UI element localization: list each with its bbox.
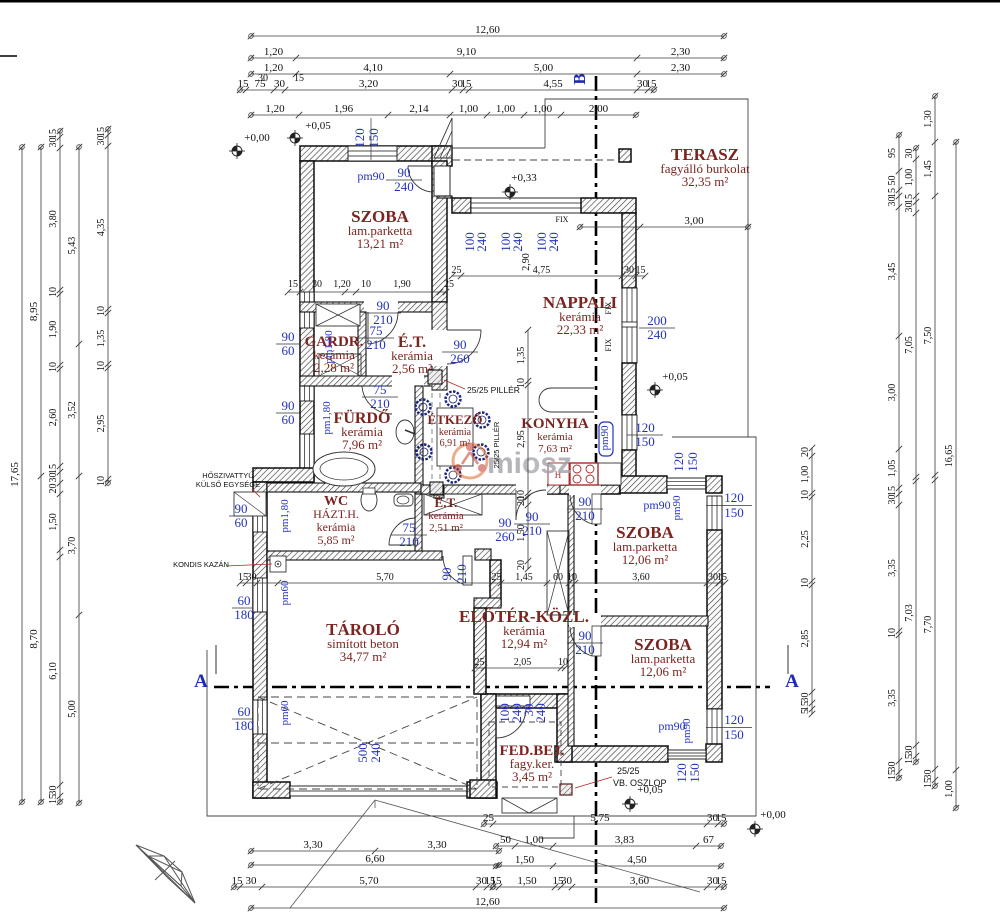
svg-text:240: 240 [546,232,561,252]
svg-text:5,43: 5,43 [67,237,78,255]
svg-text:20: 20 [516,496,527,506]
svg-text:4,35: 4,35 [96,219,107,237]
svg-text:1,20: 1,20 [265,103,285,115]
svg-text:7,63 m²: 7,63 m² [538,443,573,455]
svg-text:3,60: 3,60 [630,875,650,887]
svg-text:30: 30 [923,770,934,780]
svg-text:FIX: FIX [604,301,613,314]
svg-text:10: 10 [800,490,811,500]
svg-text:15: 15 [48,794,59,804]
svg-text:60: 60 [238,704,251,719]
svg-text:4,50: 4,50 [627,854,647,866]
svg-text:pm1,80: pm1,80 [321,401,333,435]
svg-text:30: 30 [904,203,915,213]
svg-text:1,00: 1,00 [524,834,544,846]
svg-text:30: 30 [48,786,59,796]
svg-text:HŐSZIVATTYÚ: HŐSZIVATTYÚ [202,471,253,480]
svg-text:FIX: FIX [604,338,613,351]
svg-text:90: 90 [235,501,248,516]
svg-text:30: 30 [246,875,258,887]
svg-text:+0,05: +0,05 [662,371,688,383]
svg-text:15: 15 [923,778,934,788]
svg-text:1,00: 1,00 [496,103,516,115]
svg-text:200: 200 [647,313,667,328]
svg-text:ÉTKEZŐ: ÉTKEZŐ [428,412,483,427]
svg-text:1,00: 1,00 [459,103,479,115]
svg-text:180: 180 [234,718,254,733]
svg-text:30: 30 [800,693,811,703]
svg-text:15: 15 [717,572,727,583]
svg-text:25/25 PILLÉR: 25/25 PILLÉR [492,421,501,468]
svg-text:3,00: 3,00 [887,384,898,402]
svg-text:1,50: 1,50 [516,524,527,542]
svg-text:15: 15 [716,875,728,887]
svg-text:210: 210 [366,337,386,352]
svg-text:2,56 m²: 2,56 m² [392,361,432,376]
svg-text:60: 60 [238,593,251,608]
svg-text:FIX: FIX [556,215,569,224]
svg-text:15: 15 [887,770,898,780]
svg-text:30: 30 [561,875,573,887]
svg-text:9,10: 9,10 [457,46,477,58]
svg-text:pm90: pm90 [671,495,683,521]
svg-text:2,51 m²: 2,51 m² [429,522,464,534]
svg-text:90: 90 [377,298,390,313]
svg-text:90: 90 [454,337,467,352]
svg-text:pm90: pm90 [357,169,384,183]
svg-text:10: 10 [96,476,107,486]
svg-text:12,60: 12,60 [475,896,500,908]
svg-text:10: 10 [887,628,898,638]
svg-text:5: 5 [800,709,811,714]
svg-text:6,10: 6,10 [48,662,59,680]
svg-text:15: 15 [636,265,646,276]
svg-text:15: 15 [716,812,728,824]
svg-text:4,75: 4,75 [533,265,551,276]
svg-text:B: B [570,73,589,84]
svg-text:3,20: 3,20 [359,78,379,90]
svg-text:120: 120 [724,490,744,505]
svg-text:15: 15 [887,486,898,496]
svg-text:kerámia: kerámia [428,510,464,522]
svg-text:3,35: 3,35 [887,689,898,707]
svg-text:2,25: 2,25 [800,530,811,548]
svg-text:20: 20 [800,447,811,457]
svg-text:pm1,80: pm1,80 [323,330,335,364]
svg-text:50: 50 [500,834,512,846]
svg-text:75: 75 [374,382,387,397]
svg-text:3,30: 3,30 [303,839,323,851]
svg-text:150: 150 [635,434,655,449]
svg-text:25: 25 [483,812,495,824]
svg-text:30: 30 [96,136,107,146]
svg-text:50: 50 [887,176,898,186]
svg-text:3,30: 3,30 [427,839,447,851]
svg-text:1,35: 1,35 [96,330,107,348]
svg-text:240: 240 [394,179,414,194]
svg-text:16,65: 16,65 [944,445,955,468]
svg-text:120: 120 [635,420,655,435]
svg-text:1,45: 1,45 [923,160,934,178]
svg-text:2,05: 2,05 [514,657,532,668]
svg-text:10: 10 [48,287,59,297]
svg-text:pm60: pm60 [279,700,291,726]
svg-text:7,03: 7,03 [904,604,915,622]
svg-text:pm60: pm60 [279,580,291,606]
svg-text:2,14: 2,14 [409,103,429,115]
svg-text:+0,05: +0,05 [637,784,663,796]
svg-text:1,00: 1,00 [533,103,553,115]
svg-text:KÜLSŐ EGYSÉGE: KÜLSŐ EGYSÉGE [196,480,260,489]
svg-text:60: 60 [553,572,563,583]
svg-text:25: 25 [475,657,485,668]
svg-text:+0,00: +0,00 [244,132,270,144]
svg-text:240: 240 [368,743,383,763]
svg-text:15: 15 [48,464,59,474]
svg-text:34,77 m²: 34,77 m² [340,649,387,664]
svg-text:90: 90 [579,628,592,643]
svg-text:2,90: 2,90 [521,253,532,271]
svg-text:6,91 m²: 6,91 m² [440,438,471,449]
svg-text:30: 30 [887,495,898,505]
svg-text:30: 30 [48,138,59,148]
svg-text:12,94 m²: 12,94 m² [501,636,548,651]
svg-text:1,50: 1,50 [515,854,535,866]
svg-text:260: 260 [450,351,470,366]
svg-text:3,70: 3,70 [67,537,78,555]
svg-text:1,00: 1,00 [904,169,915,187]
svg-text:32,35 m²: 32,35 m² [682,174,729,189]
svg-text:2,85: 2,85 [800,630,811,648]
svg-text:30: 30 [274,78,286,90]
svg-text:A: A [194,671,208,692]
svg-text:15: 15 [461,78,473,90]
svg-text:20: 20 [516,560,527,570]
svg-text:7,50: 7,50 [923,327,934,345]
svg-text:kerámia: kerámia [317,520,356,534]
svg-text:90: 90 [282,398,295,413]
svg-text:60: 60 [282,343,295,358]
svg-text:15: 15 [887,188,898,198]
svg-text:10: 10 [558,657,568,668]
svg-text:pm90: pm90 [599,425,611,451]
svg-text:2,30: 2,30 [671,46,691,58]
svg-text:3,00: 3,00 [684,215,704,227]
svg-text:pm1,80: pm1,80 [279,499,291,533]
svg-text:4,10: 4,10 [363,62,383,74]
svg-text:260: 260 [495,529,515,544]
svg-text:1,35: 1,35 [516,347,527,365]
svg-text:10: 10 [48,362,59,372]
svg-text:10: 10 [361,279,371,290]
svg-text:20: 20 [48,484,59,494]
svg-text:10: 10 [96,361,107,371]
svg-text:120: 120 [724,712,744,727]
svg-text:90: 90 [398,165,411,180]
svg-text:4,55: 4,55 [543,78,563,90]
svg-text:1,00: 1,00 [944,780,955,798]
svg-text:3,52: 3,52 [67,401,78,419]
svg-text:90: 90 [282,329,295,344]
svg-text:120: 120 [671,452,686,472]
svg-text:30: 30 [904,149,915,159]
svg-text:10: 10 [516,378,527,388]
svg-text:240: 240 [510,232,525,252]
svg-text:pm90: pm90 [681,718,693,744]
svg-text:150: 150 [724,727,744,742]
svg-text:13,21 m²: 13,21 m² [357,236,404,251]
svg-text:+0,33: +0,33 [511,172,537,184]
svg-text:15: 15 [294,73,304,84]
svg-text:120: 120 [352,128,367,148]
svg-text:7,70: 7,70 [923,616,934,634]
svg-text:1,96: 1,96 [334,103,354,115]
svg-text:75: 75 [403,520,416,535]
svg-text:1,30: 1,30 [923,110,934,128]
svg-text:5,00: 5,00 [67,700,78,718]
svg-text:30: 30 [247,572,257,583]
svg-text:210: 210 [575,508,595,523]
svg-text:240: 240 [647,327,667,342]
svg-text:90: 90 [499,515,512,530]
svg-text:2,30: 2,30 [671,62,691,74]
svg-text:10: 10 [800,578,811,588]
svg-text:210: 210 [370,396,390,411]
svg-text:1,50: 1,50 [48,513,59,531]
svg-text:210: 210 [454,564,469,584]
svg-text:240: 240 [533,703,548,723]
svg-text:kerámia: kerámia [439,427,472,438]
svg-text:75: 75 [255,78,267,90]
svg-text:KONDIS KAZÁN: KONDIS KAZÁN [173,560,229,569]
svg-text:90: 90 [579,494,592,509]
svg-text:7,96 m²: 7,96 m² [342,437,382,452]
svg-text:15: 15 [646,78,658,90]
svg-text:2,95: 2,95 [516,430,527,448]
svg-text:5,75: 5,75 [590,812,610,824]
svg-text:2,00: 2,00 [589,103,609,115]
svg-text:+0,05: +0,05 [305,120,331,132]
svg-text:30: 30 [904,746,915,756]
svg-text:25: 25 [452,265,462,276]
svg-text:150: 150 [687,763,702,783]
svg-text:1,90: 1,90 [48,321,59,339]
svg-text:6,60: 6,60 [365,853,385,865]
svg-text:2,95: 2,95 [96,415,107,433]
svg-text:8,70: 8,70 [28,629,40,649]
svg-text:1,20: 1,20 [333,279,351,290]
svg-text:pm90: pm90 [643,498,670,512]
svg-text:3,45 m²: 3,45 m² [512,769,552,784]
svg-text:240: 240 [474,232,489,252]
svg-text:5,70: 5,70 [376,572,394,583]
svg-text:15: 15 [904,194,915,204]
svg-text:KONYHA: KONYHA [521,416,589,432]
svg-text:5,70: 5,70 [359,875,379,887]
svg-text:90: 90 [439,568,454,581]
svg-text:12,60: 12,60 [475,24,500,36]
svg-text:1,05: 1,05 [887,460,898,478]
svg-text:15: 15 [904,754,915,764]
svg-text:3,80: 3,80 [48,210,59,228]
svg-text:67: 67 [703,834,715,846]
svg-text:210: 210 [575,642,595,657]
svg-text:15: 15 [288,279,298,290]
svg-text:É.T.: É.T. [435,495,458,510]
svg-text:30: 30 [312,279,322,290]
svg-text:150: 150 [366,128,381,148]
svg-text:150: 150 [724,505,744,520]
svg-text:3,45: 3,45 [887,263,898,281]
svg-text:1,45: 1,45 [515,572,533,583]
svg-text:5,00: 5,00 [534,62,554,74]
svg-text:15: 15 [48,129,59,139]
svg-text:180: 180 [234,607,254,622]
svg-text:150: 150 [685,452,700,472]
svg-text:2,60: 2,60 [48,409,59,427]
svg-text:25: 25 [492,572,502,583]
svg-text:kerámia: kerámia [537,431,573,443]
svg-text:12,06 m²: 12,06 m² [640,664,687,679]
svg-text:90: 90 [526,509,539,524]
svg-text:3,35: 3,35 [887,559,898,577]
svg-text:+0,00: +0,00 [760,809,786,821]
svg-text:12,06 m²: 12,06 m² [622,552,669,567]
svg-text:25/25: 25/25 [617,766,640,776]
svg-text:10: 10 [567,572,577,583]
svg-text:15: 15 [232,875,244,887]
svg-text:3,60: 3,60 [632,572,650,583]
svg-text:60: 60 [282,412,295,427]
svg-text:22,33 m²: 22,33 m² [557,322,604,337]
svg-text:95: 95 [887,148,898,158]
svg-text:1,90: 1,90 [393,279,411,290]
svg-text:210: 210 [373,312,393,327]
svg-text:10: 10 [96,306,107,316]
svg-text:15: 15 [96,127,107,137]
svg-text:HÁZT.H.: HÁZT.H. [313,507,359,521]
svg-text:60: 60 [235,515,248,530]
svg-text:8,95: 8,95 [28,301,40,321]
svg-text:25: 25 [444,279,454,290]
svg-text:30: 30 [887,762,898,772]
svg-text:A: A [785,671,799,692]
svg-text:25/25 PILLÉR: 25/25 PILLÉR [467,385,520,395]
svg-text:30: 30 [624,265,634,276]
svg-text:1,00: 1,00 [800,466,811,484]
svg-text:30: 30 [887,197,898,207]
svg-text:3,83: 3,83 [615,834,635,846]
svg-text:15: 15 [491,875,503,887]
svg-text:30: 30 [48,473,59,483]
svg-text:1,20: 1,20 [264,46,284,58]
svg-text:1,50: 1,50 [517,875,537,887]
svg-text:17,65: 17,65 [9,462,21,487]
svg-text:210: 210 [399,534,419,549]
svg-text:15: 15 [238,78,250,90]
svg-text:7,05: 7,05 [904,336,915,354]
svg-text:5,85 m²: 5,85 m² [318,533,355,547]
